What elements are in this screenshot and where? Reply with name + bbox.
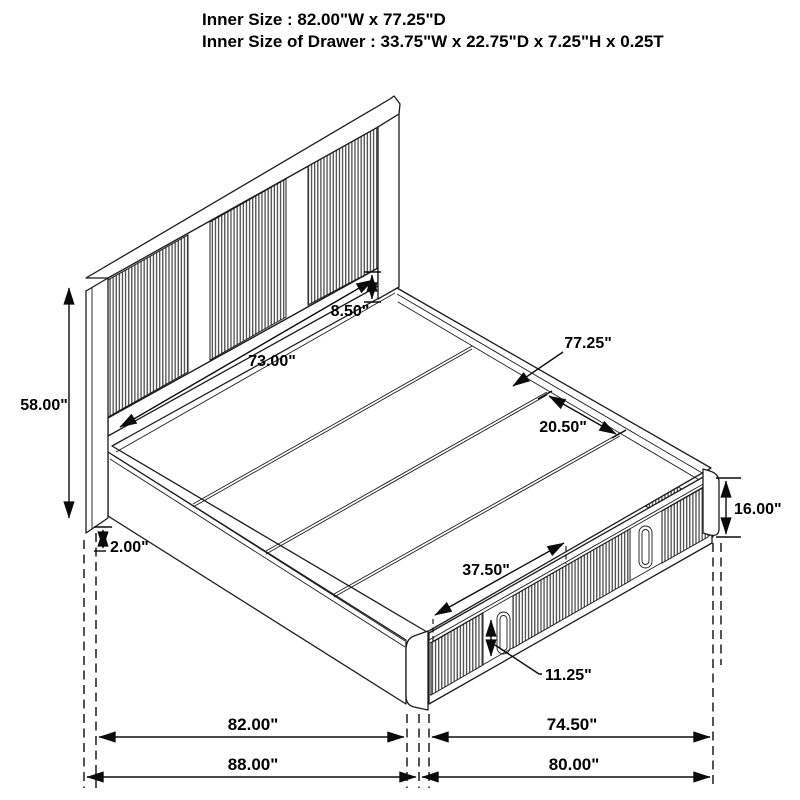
dim-label-drawer-front-height: 11.25" xyxy=(545,667,592,684)
inner-drawer-size-line: Inner Size of Drawer : 33.75"W x 22.75"D… xyxy=(202,32,664,51)
headboard-left-post xyxy=(86,278,108,533)
dim-label-inner-width: 82.00" xyxy=(228,715,279,734)
dim-label-platform-height: 16.00" xyxy=(734,501,782,518)
headboard-right-post xyxy=(378,114,399,299)
dim-label-overall-depth: 80.00" xyxy=(549,755,600,774)
dim-headboard-height: 58.00" xyxy=(20,288,69,518)
bed-dimension-diagram: Inner Size : 82.00"W x 77.25"D Inner Siz… xyxy=(0,0,800,800)
dim-label-plank-depth: 20.50" xyxy=(539,419,587,436)
dim-inner-depth: 74.50" xyxy=(432,715,710,737)
inner-size-line: Inner Size : 82.00"W x 77.25"D xyxy=(202,10,446,29)
dim-platform-height: 16.00" xyxy=(716,478,782,537)
title-block: Inner Size : 82.00"W x 77.25"D Inner Siz… xyxy=(202,10,664,51)
dim-label-panel-to-deck-gap: 8.50" xyxy=(331,303,370,320)
dim-label-headboard-opening-width: 73.00" xyxy=(248,353,296,370)
dim-label-leg-clearance: 2.00" xyxy=(110,539,149,556)
dim-overall-depth: 80.00" xyxy=(422,755,710,777)
diagram-canvas: Inner Size : 82.00"W x 77.25"D Inner Siz… xyxy=(0,0,800,800)
dim-label-headboard-height: 58.00" xyxy=(20,397,68,414)
dim-label-inner-depth: 74.50" xyxy=(547,715,598,734)
dim-overall-width: 88.00" xyxy=(87,755,416,777)
dim-label-overall-width: 88.00" xyxy=(228,755,279,774)
dim-inner-width: 82.00" xyxy=(99,715,404,737)
footboard-left-corner-post xyxy=(406,631,428,710)
bed-drawing xyxy=(86,96,719,710)
dim-label-deck-depth: 77.25" xyxy=(564,335,612,352)
dim-label-drawer-opening-width: 37.50" xyxy=(462,562,510,579)
footboard-right-corner-post xyxy=(703,469,719,535)
